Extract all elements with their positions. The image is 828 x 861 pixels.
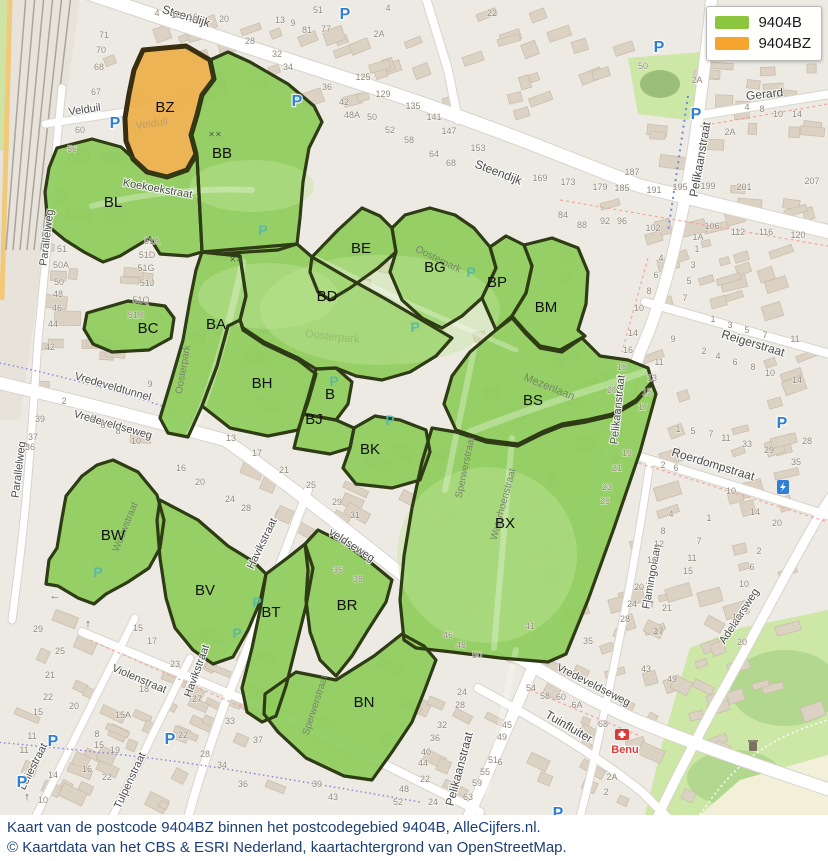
region-label-BE: BE bbox=[351, 240, 371, 257]
region-label-BC: BC bbox=[138, 320, 159, 337]
svg-text:5: 5 bbox=[686, 276, 691, 286]
svg-text:4: 4 bbox=[658, 253, 663, 263]
svg-text:191: 191 bbox=[646, 185, 661, 195]
svg-text:16: 16 bbox=[647, 555, 657, 565]
region-label-BG: BG bbox=[424, 259, 446, 276]
svg-text:185: 185 bbox=[614, 183, 629, 193]
svg-text:51: 51 bbox=[57, 244, 67, 254]
svg-text:14: 14 bbox=[48, 770, 58, 780]
svg-text:88: 88 bbox=[577, 220, 587, 230]
svg-text:11: 11 bbox=[654, 357, 663, 367]
svg-text:16: 16 bbox=[82, 764, 92, 774]
svg-text:67: 67 bbox=[91, 87, 101, 97]
svg-text:52: 52 bbox=[393, 797, 403, 807]
region-label-BD: BD bbox=[317, 288, 338, 305]
svg-text:19: 19 bbox=[622, 448, 632, 458]
parking-icon: P bbox=[292, 93, 303, 110]
svg-text:44: 44 bbox=[48, 319, 58, 329]
svg-text:22: 22 bbox=[43, 692, 53, 702]
svg-text:68: 68 bbox=[598, 719, 608, 729]
svg-text:14: 14 bbox=[792, 375, 802, 385]
svg-text:3: 3 bbox=[690, 260, 695, 270]
svg-text:24: 24 bbox=[428, 797, 438, 807]
svg-text:←: ← bbox=[50, 590, 61, 602]
svg-text:38: 38 bbox=[353, 574, 363, 584]
svg-text:51R: 51R bbox=[128, 310, 145, 320]
svg-text:50: 50 bbox=[472, 650, 482, 660]
svg-text:58: 58 bbox=[540, 691, 550, 701]
svg-text:34: 34 bbox=[217, 760, 227, 770]
svg-text:64: 64 bbox=[429, 149, 439, 159]
caption-line-2: © Kaartdata van het CBS & ESRI Nederland… bbox=[7, 838, 820, 858]
region-label-BK: BK bbox=[360, 441, 380, 458]
svg-text:60: 60 bbox=[75, 125, 85, 135]
svg-text:14: 14 bbox=[792, 109, 802, 119]
svg-text:6: 6 bbox=[100, 420, 105, 430]
svg-text:25: 25 bbox=[600, 496, 610, 506]
svg-text:1: 1 bbox=[694, 244, 699, 254]
svg-text:34: 34 bbox=[283, 62, 293, 72]
legend-item-9404bz: 9404BZ bbox=[715, 33, 811, 54]
svg-text:39: 39 bbox=[312, 779, 322, 789]
parking-icon: P bbox=[654, 39, 665, 56]
legend-swatch-green-icon bbox=[715, 16, 749, 29]
svg-text:11: 11 bbox=[19, 745, 28, 755]
parking-icon: P bbox=[340, 6, 351, 23]
svg-text:5: 5 bbox=[744, 325, 749, 335]
svg-text:116: 116 bbox=[759, 227, 773, 237]
svg-text:46: 46 bbox=[443, 630, 453, 640]
svg-text:13: 13 bbox=[226, 433, 236, 443]
parking-icon: P bbox=[691, 106, 702, 123]
svg-text:84: 84 bbox=[558, 210, 568, 220]
svg-text:1: 1 bbox=[710, 314, 715, 324]
svg-text:48A: 48A bbox=[344, 110, 360, 120]
legend-swatch-orange-icon bbox=[715, 37, 749, 50]
svg-text:9: 9 bbox=[290, 18, 295, 28]
svg-text:6: 6 bbox=[749, 562, 754, 572]
svg-text:46: 46 bbox=[52, 303, 62, 313]
svg-text:2: 2 bbox=[61, 396, 66, 406]
svg-text:50: 50 bbox=[54, 277, 64, 287]
svg-text:32: 32 bbox=[437, 720, 447, 730]
waste-bin-icon bbox=[748, 740, 758, 751]
svg-text:77: 77 bbox=[321, 24, 331, 34]
svg-text:22: 22 bbox=[420, 774, 430, 784]
svg-text:125: 125 bbox=[355, 72, 370, 82]
svg-text:20: 20 bbox=[69, 701, 79, 711]
svg-text:41: 41 bbox=[525, 621, 535, 631]
svg-text:8: 8 bbox=[660, 526, 665, 536]
svg-text:20: 20 bbox=[607, 385, 617, 395]
svg-text:51: 51 bbox=[313, 5, 323, 15]
parking-icon: P bbox=[553, 805, 564, 815]
caption-line-1: Kaart van de postcode 9404BZ binnen het … bbox=[7, 818, 820, 838]
region-label-B: B bbox=[325, 386, 335, 403]
svg-text:9: 9 bbox=[670, 334, 675, 344]
svg-text:4: 4 bbox=[154, 8, 159, 18]
svg-text:↑: ↑ bbox=[24, 791, 30, 803]
svg-text:16: 16 bbox=[176, 463, 186, 473]
svg-text:11: 11 bbox=[790, 334, 799, 344]
svg-text:2A: 2A bbox=[724, 127, 735, 137]
svg-text:15: 15 bbox=[642, 387, 652, 397]
svg-text:1: 1 bbox=[675, 424, 680, 434]
svg-text:3: 3 bbox=[727, 320, 732, 330]
svg-text:2: 2 bbox=[701, 346, 706, 356]
svg-text:20: 20 bbox=[219, 14, 229, 24]
svg-text:4: 4 bbox=[385, 3, 390, 13]
svg-text:153: 153 bbox=[470, 143, 485, 153]
svg-text:27: 27 bbox=[653, 626, 663, 636]
svg-text:21: 21 bbox=[612, 463, 622, 473]
svg-text:16: 16 bbox=[623, 345, 633, 355]
region-label-BL: BL bbox=[104, 194, 122, 211]
svg-text:24: 24 bbox=[225, 494, 235, 504]
svg-text:36: 36 bbox=[322, 82, 332, 92]
svg-text:28: 28 bbox=[802, 436, 812, 446]
svg-text:50: 50 bbox=[638, 61, 648, 71]
svg-text:120: 120 bbox=[790, 230, 805, 240]
svg-text:20: 20 bbox=[634, 582, 644, 592]
svg-text:8: 8 bbox=[94, 729, 99, 739]
svg-text:36: 36 bbox=[430, 733, 440, 743]
svg-text:15: 15 bbox=[683, 566, 693, 576]
svg-text:112: 112 bbox=[731, 227, 745, 237]
svg-text:29: 29 bbox=[332, 497, 342, 507]
svg-text:129: 129 bbox=[375, 89, 390, 99]
svg-text:2A: 2A bbox=[373, 29, 384, 39]
svg-text:70: 70 bbox=[96, 45, 106, 55]
svg-text:68: 68 bbox=[94, 62, 104, 72]
svg-text:169: 169 bbox=[532, 173, 547, 183]
svg-text:22: 22 bbox=[178, 730, 188, 740]
svg-text:8: 8 bbox=[750, 362, 755, 372]
svg-text:13: 13 bbox=[647, 373, 657, 383]
svg-text:10: 10 bbox=[634, 303, 644, 313]
svg-text:51J: 51J bbox=[140, 278, 155, 288]
svg-text:4: 4 bbox=[715, 351, 720, 361]
svg-text:29: 29 bbox=[764, 445, 774, 455]
svg-text:9: 9 bbox=[147, 379, 152, 389]
svg-text:22: 22 bbox=[487, 8, 497, 18]
svg-text:22: 22 bbox=[102, 772, 112, 782]
svg-text:17: 17 bbox=[638, 402, 648, 412]
svg-text:6A: 6A bbox=[571, 700, 582, 710]
svg-text:54: 54 bbox=[526, 683, 536, 693]
park-parking-icon: P bbox=[410, 319, 419, 335]
svg-text:11: 11 bbox=[27, 731, 36, 741]
playground-icon: ✕✕ bbox=[229, 255, 242, 264]
svg-text:2: 2 bbox=[660, 460, 665, 470]
svg-text:5: 5 bbox=[690, 426, 695, 436]
region-label-BR: BR bbox=[337, 597, 358, 614]
svg-text:2A: 2A bbox=[691, 75, 702, 85]
svg-text:43: 43 bbox=[328, 792, 338, 802]
svg-text:40: 40 bbox=[421, 747, 431, 757]
svg-text:7: 7 bbox=[762, 330, 767, 340]
svg-text:51A: 51A bbox=[144, 236, 160, 246]
svg-text:6: 6 bbox=[497, 757, 502, 767]
svg-text:10: 10 bbox=[38, 795, 48, 805]
svg-text:36: 36 bbox=[333, 565, 343, 575]
svg-text:51G: 51G bbox=[137, 263, 154, 273]
svg-text:12: 12 bbox=[654, 539, 664, 549]
svg-text:10: 10 bbox=[739, 579, 749, 589]
svg-text:31: 31 bbox=[350, 510, 360, 520]
svg-text:81: 81 bbox=[302, 25, 312, 35]
svg-text:17: 17 bbox=[252, 448, 262, 458]
svg-text:33: 33 bbox=[742, 439, 752, 449]
svg-text:11: 11 bbox=[687, 553, 696, 563]
svg-text:187: 187 bbox=[624, 167, 639, 177]
svg-text:21: 21 bbox=[45, 670, 55, 680]
park-parking-icon: P bbox=[93, 564, 102, 580]
svg-text:173: 173 bbox=[560, 177, 575, 187]
svg-text:52: 52 bbox=[385, 125, 395, 135]
svg-text:25: 25 bbox=[55, 646, 65, 656]
legend-label: 9404B bbox=[758, 15, 801, 30]
svg-text:35: 35 bbox=[583, 636, 593, 646]
svg-text:58: 58 bbox=[404, 135, 414, 145]
svg-text:28: 28 bbox=[245, 36, 255, 46]
svg-text:4: 4 bbox=[89, 413, 94, 423]
parking-icon: P bbox=[777, 415, 788, 432]
park-parking-icon: P bbox=[252, 594, 261, 610]
svg-text:68: 68 bbox=[446, 158, 456, 168]
parking-icon: P bbox=[17, 774, 28, 791]
svg-text:8: 8 bbox=[115, 426, 120, 436]
region-label-BA: BA bbox=[206, 316, 226, 333]
region-label-BS: BS bbox=[523, 392, 543, 409]
svg-text:10: 10 bbox=[765, 368, 775, 378]
svg-text:37: 37 bbox=[28, 432, 38, 442]
svg-text:195: 195 bbox=[672, 182, 687, 192]
svg-text:7: 7 bbox=[682, 293, 687, 303]
parking-icon: P bbox=[110, 115, 121, 132]
svg-text:29: 29 bbox=[33, 624, 43, 634]
svg-text:10: 10 bbox=[171, 10, 181, 20]
svg-text:48: 48 bbox=[53, 289, 63, 299]
svg-text:7: 7 bbox=[708, 429, 713, 439]
svg-text:60: 60 bbox=[556, 692, 566, 702]
svg-text:27: 27 bbox=[192, 694, 202, 704]
svg-text:135: 135 bbox=[405, 101, 420, 111]
ev-charger-icon bbox=[777, 480, 789, 494]
svg-text:28: 28 bbox=[200, 749, 210, 759]
svg-text:92: 92 bbox=[600, 216, 610, 226]
svg-text:51Q: 51Q bbox=[132, 295, 149, 305]
svg-text:8: 8 bbox=[759, 104, 764, 114]
svg-text:35: 35 bbox=[791, 457, 801, 467]
svg-text:20: 20 bbox=[772, 518, 782, 528]
svg-text:96: 96 bbox=[617, 216, 627, 226]
park-parking-icon: P bbox=[466, 264, 475, 280]
svg-text:43: 43 bbox=[641, 664, 651, 674]
postcode-map-screenshot: SteendijkSteendijkVelduilVelduilKoekoeks… bbox=[0, 0, 828, 861]
svg-text:14: 14 bbox=[732, 612, 742, 622]
svg-text:141: 141 bbox=[426, 112, 441, 122]
svg-text:10: 10 bbox=[773, 109, 783, 119]
svg-text:13: 13 bbox=[275, 15, 285, 25]
svg-text:28: 28 bbox=[620, 614, 630, 624]
svg-text:48: 48 bbox=[399, 784, 409, 794]
svg-text:15A: 15A bbox=[115, 710, 131, 720]
svg-text:19: 19 bbox=[110, 745, 120, 755]
svg-text:↑: ↑ bbox=[85, 618, 91, 630]
svg-text:50: 50 bbox=[367, 112, 377, 122]
svg-text:59: 59 bbox=[472, 778, 482, 788]
region-label-BM: BM bbox=[535, 299, 558, 316]
park-parking-icon: P bbox=[258, 222, 267, 238]
region-label-BW: BW bbox=[101, 527, 126, 544]
svg-text:1: 1 bbox=[706, 513, 711, 523]
svg-text:Benu: Benu bbox=[611, 744, 639, 756]
svg-text:71: 71 bbox=[99, 30, 109, 40]
svg-text:37: 37 bbox=[253, 735, 263, 745]
region-label-BN: BN bbox=[354, 694, 375, 711]
svg-text:4: 4 bbox=[744, 102, 749, 112]
svg-text:10: 10 bbox=[131, 436, 141, 446]
svg-text:48: 48 bbox=[456, 640, 466, 650]
region-label-BZ: BZ bbox=[155, 99, 174, 116]
svg-text:15: 15 bbox=[33, 707, 43, 717]
region-label-BX: BX bbox=[495, 515, 515, 532]
svg-text:50A: 50A bbox=[53, 260, 69, 270]
svg-text:106: 106 bbox=[704, 221, 719, 231]
park-parking-icon: P bbox=[385, 412, 394, 428]
playground-icon: ✕✕ bbox=[208, 130, 221, 139]
legend-label: 9404BZ bbox=[758, 36, 811, 51]
svg-text:49: 49 bbox=[667, 674, 677, 684]
svg-text:42: 42 bbox=[339, 97, 349, 107]
svg-text:207: 207 bbox=[804, 176, 819, 186]
svg-text:16: 16 bbox=[188, 12, 198, 22]
svg-text:21: 21 bbox=[279, 465, 289, 475]
region-label-BT: BT bbox=[261, 604, 280, 621]
svg-text:56: 56 bbox=[67, 144, 77, 154]
svg-text:20: 20 bbox=[195, 477, 205, 487]
svg-text:7: 7 bbox=[696, 536, 701, 546]
region-label-BP: BP bbox=[487, 274, 507, 291]
svg-text:21: 21 bbox=[662, 603, 672, 613]
svg-text:14: 14 bbox=[750, 507, 760, 517]
map-canvas: SteendijkSteendijkVelduilVelduilKoekoeks… bbox=[0, 0, 828, 815]
svg-text:2A: 2A bbox=[606, 772, 617, 782]
region-label-BH: BH bbox=[252, 375, 273, 392]
svg-text:36: 36 bbox=[238, 779, 248, 789]
svg-text:6: 6 bbox=[673, 463, 678, 473]
svg-text:10: 10 bbox=[726, 486, 736, 496]
svg-text:39: 39 bbox=[35, 414, 45, 424]
svg-text:18: 18 bbox=[139, 684, 149, 694]
svg-text:51D: 51D bbox=[139, 250, 156, 260]
svg-text:147: 147 bbox=[441, 126, 456, 136]
svg-text:6: 6 bbox=[732, 357, 737, 367]
svg-text:↑: ↑ bbox=[649, 598, 655, 610]
svg-text:4: 4 bbox=[668, 509, 673, 519]
svg-text:199: 199 bbox=[700, 181, 715, 191]
svg-text:45: 45 bbox=[502, 720, 512, 730]
svg-text:63: 63 bbox=[463, 792, 473, 802]
svg-text:25: 25 bbox=[306, 480, 316, 490]
svg-text:2: 2 bbox=[603, 787, 608, 797]
svg-text:102: 102 bbox=[645, 223, 660, 233]
svg-text:28: 28 bbox=[241, 503, 251, 513]
svg-text:44: 44 bbox=[418, 758, 428, 768]
svg-text:14: 14 bbox=[628, 328, 638, 338]
svg-text:18: 18 bbox=[617, 362, 627, 372]
svg-text:20: 20 bbox=[737, 637, 747, 647]
svg-text:11: 11 bbox=[721, 433, 730, 443]
svg-text:6: 6 bbox=[653, 270, 658, 280]
map-legend: 9404B 9404BZ bbox=[706, 6, 822, 61]
svg-text:8: 8 bbox=[646, 286, 651, 296]
legend-item-9404b: 9404B bbox=[715, 12, 811, 33]
svg-text:15: 15 bbox=[94, 740, 104, 750]
svg-text:201: 201 bbox=[736, 182, 751, 192]
parking-icon: P bbox=[165, 731, 176, 748]
region-label-BV: BV bbox=[195, 582, 215, 599]
svg-text:36: 36 bbox=[25, 442, 35, 452]
park-parking-icon: P bbox=[232, 625, 241, 641]
svg-text:15: 15 bbox=[133, 623, 143, 633]
region-label-BJ: BJ bbox=[305, 411, 323, 428]
svg-text:17: 17 bbox=[147, 636, 157, 646]
svg-text:55: 55 bbox=[480, 767, 490, 777]
svg-text:42: 42 bbox=[45, 342, 55, 352]
svg-text:24: 24 bbox=[627, 599, 637, 609]
parking-icon: P bbox=[48, 733, 59, 750]
svg-text:33: 33 bbox=[225, 716, 235, 726]
svg-text:179: 179 bbox=[592, 182, 607, 192]
svg-text:23: 23 bbox=[170, 659, 180, 669]
svg-text:28: 28 bbox=[455, 700, 465, 710]
map-caption: Kaart van de postcode 9404BZ binnen het … bbox=[0, 815, 828, 861]
svg-text:23: 23 bbox=[602, 482, 612, 492]
svg-text:49: 49 bbox=[497, 732, 507, 742]
svg-text:24: 24 bbox=[457, 687, 467, 697]
svg-text:32: 32 bbox=[272, 49, 282, 59]
region-label-BB: BB bbox=[212, 145, 232, 162]
svg-text:1A: 1A bbox=[692, 232, 703, 242]
svg-text:2: 2 bbox=[756, 546, 761, 556]
